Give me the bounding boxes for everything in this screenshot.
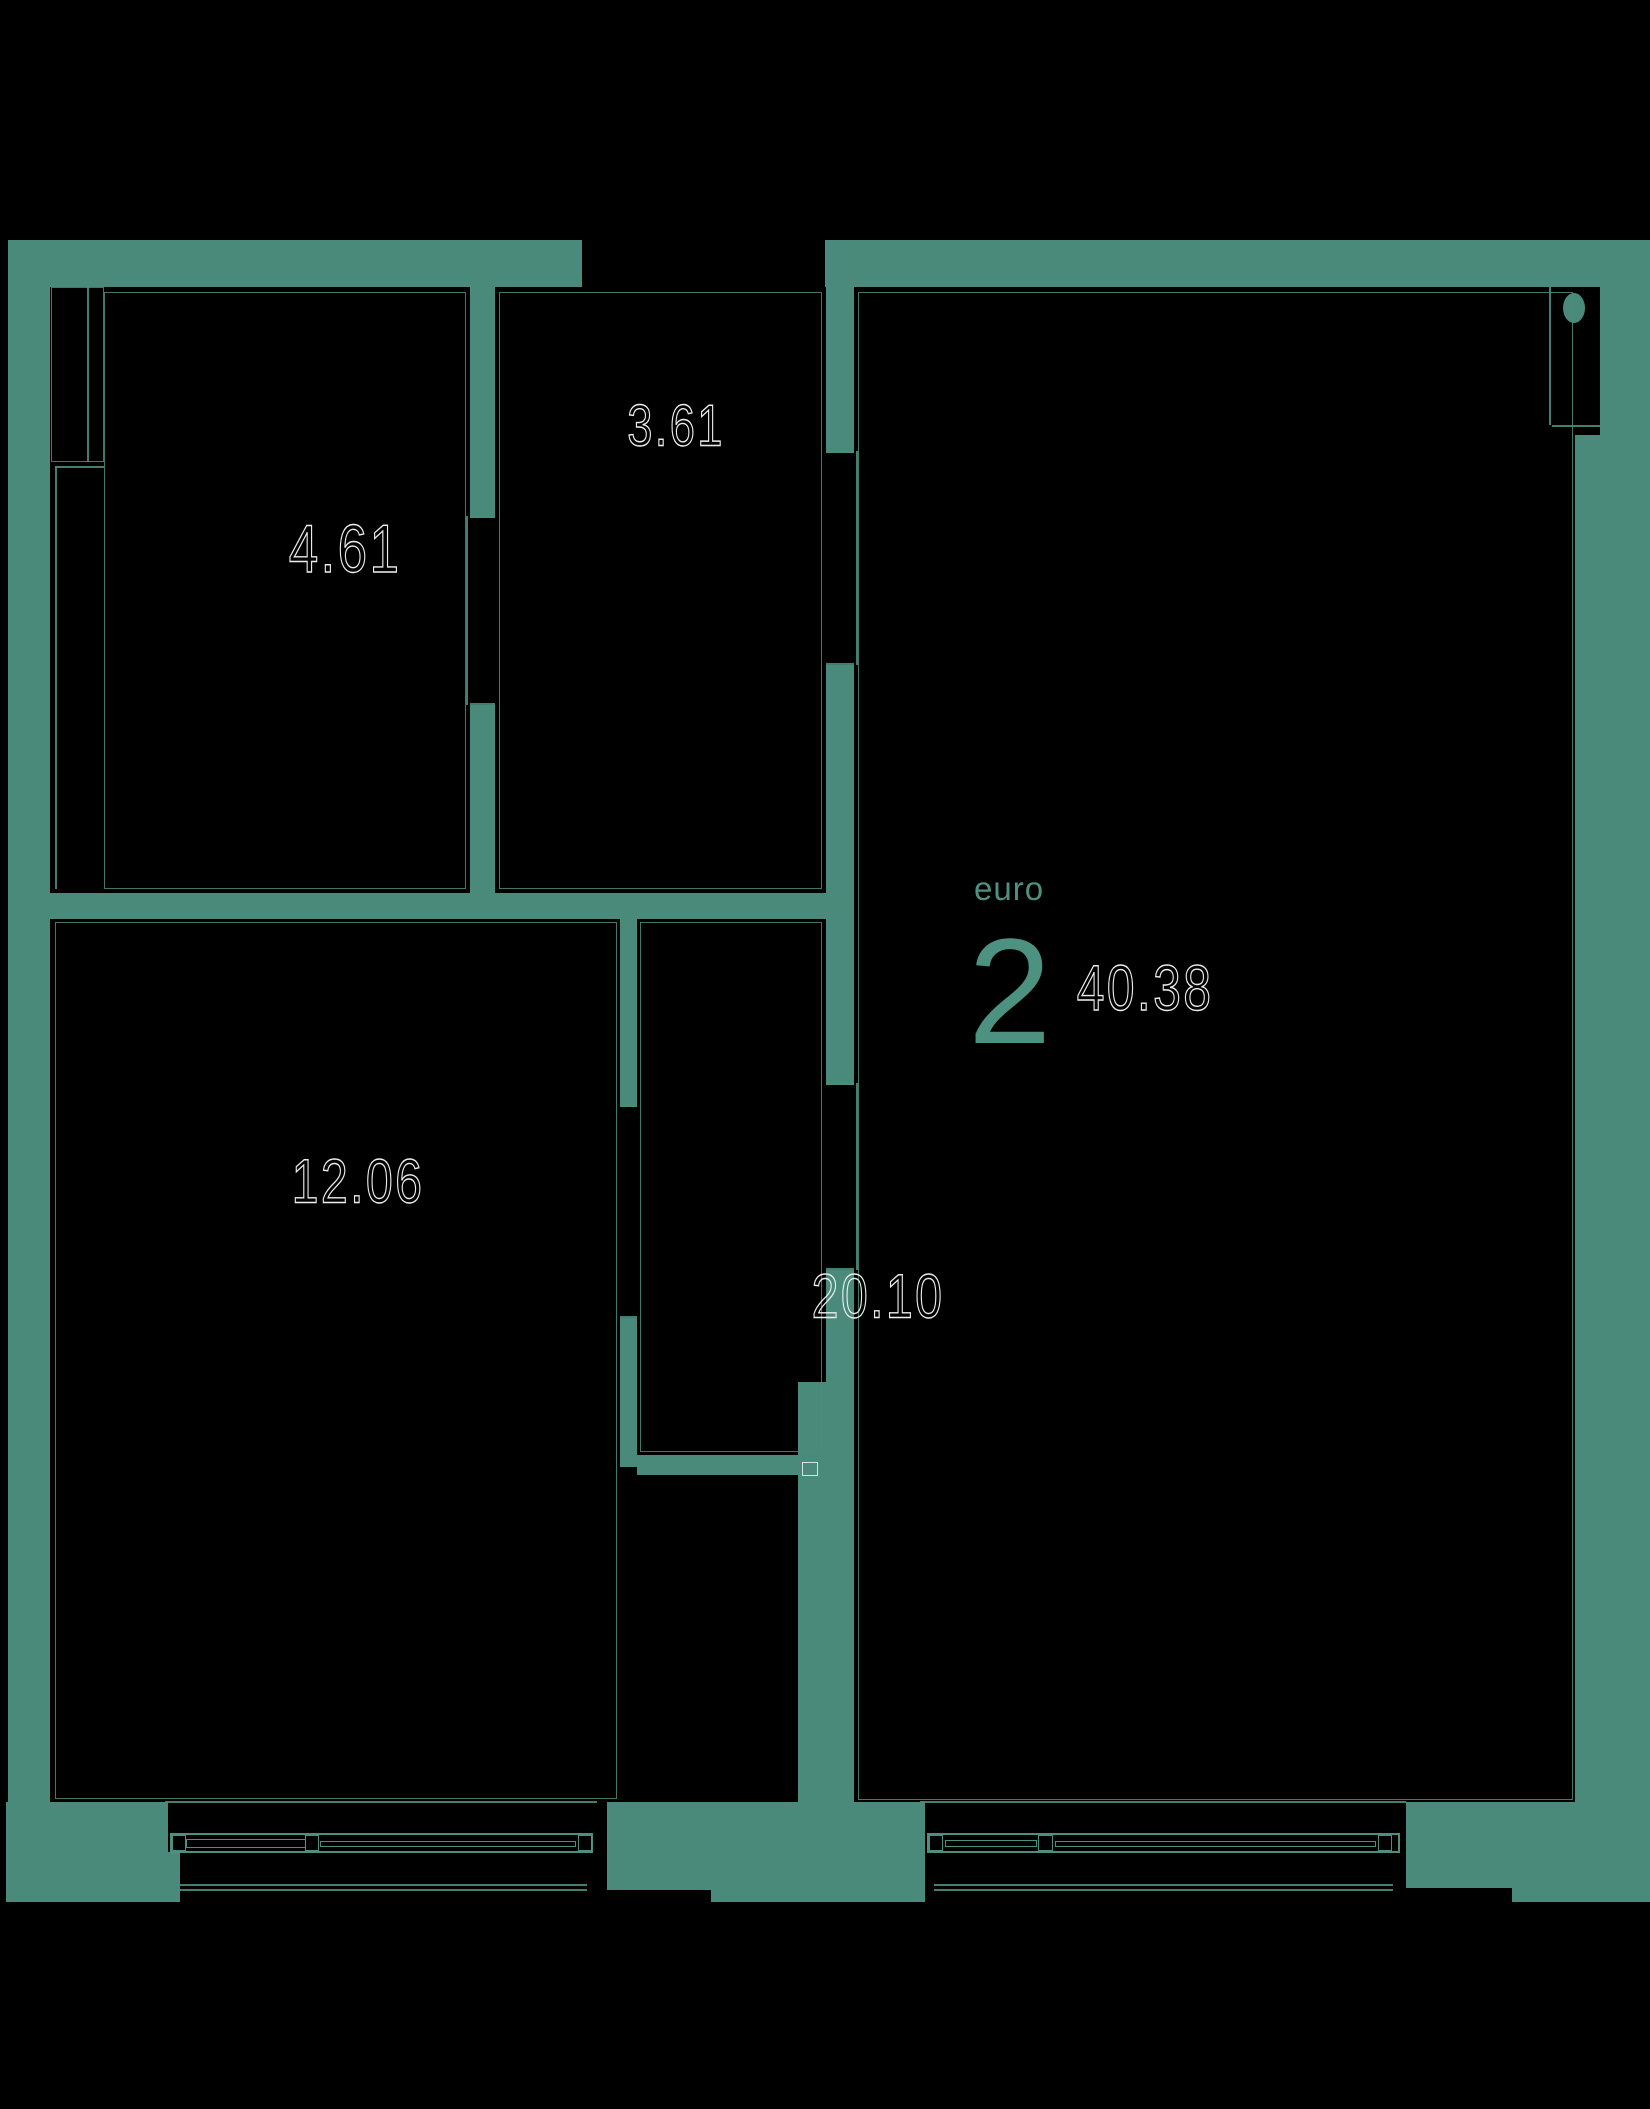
hallway-inner-outline (499, 292, 822, 889)
room461-left-face-step (55, 466, 104, 468)
wall-room461-right-lower (470, 705, 495, 893)
area-label-hallway: 3.61 (627, 393, 724, 460)
window-left-bracket-3 (578, 1835, 592, 1851)
window-right-glazing (1055, 1841, 1376, 1847)
window-right-bracket-1 (929, 1835, 943, 1851)
wardrobe-outline (51, 287, 104, 462)
window-left-sill-line-b (177, 1889, 587, 1891)
wall-top-left (8, 240, 582, 287)
window-right-sill-line-b (934, 1889, 1393, 1891)
room1206-inner-outline (55, 922, 617, 1799)
area-label-living-kitchen: 20.10 (812, 1262, 945, 1333)
door-living-jamb-a (826, 1083, 854, 1085)
corridor-inner-outline (640, 922, 822, 1452)
room461-inner-outline (104, 292, 466, 889)
window-left-glazing (320, 1841, 576, 1847)
wall-horizontal-middle (50, 893, 826, 919)
window-right-bracket-2 (1038, 1835, 1053, 1851)
door-corridor-jamb-b (620, 1316, 637, 1318)
opening-mid-top-side (856, 451, 858, 665)
area-label-room-top-left: 4.61 (289, 510, 402, 588)
wall-room461-right-upper (470, 287, 495, 518)
floor-plan: 4.61 3.61 12.06 20.10 euro 2 40.38 (0, 0, 1650, 2109)
area-label-room-bottom-left: 12.06 (292, 1147, 425, 1218)
window-right-top-face-line (920, 1801, 1406, 1803)
wardrobe-door-line (87, 287, 89, 462)
window-right-sash (945, 1840, 1037, 1847)
room461-left-face-line (55, 466, 57, 889)
wall-top-right (825, 240, 1650, 287)
wall-left (8, 287, 50, 1802)
window-left-sash (186, 1839, 306, 1848)
wall-left-foot-upper (6, 1802, 168, 1852)
window-left-bracket-2 (305, 1835, 319, 1851)
wall-left-foot-lower (6, 1852, 180, 1902)
door461-jamb-bottom (470, 703, 495, 705)
door-corridor-jamb-a (620, 1105, 637, 1107)
wall-middle-seg-top (826, 287, 854, 453)
corridor-end-tick (802, 1462, 818, 1476)
window-left-top-face-line (165, 1801, 597, 1803)
pier-bottom-center (607, 1802, 925, 1890)
door461-jamb-side (466, 516, 468, 705)
window-right-bracket-3 (1378, 1835, 1392, 1851)
unit-type-label: euro (974, 870, 1044, 908)
wall-right-foot-lower (1512, 1888, 1650, 1902)
wall-right-top-strip (1600, 287, 1650, 435)
wall-corridor-lower (620, 1318, 637, 1467)
wall-corridor-upper (620, 919, 637, 1107)
living-inner-outline (858, 292, 1573, 1800)
unit-rooms-number: 2 (968, 916, 1051, 1066)
wall-middle-seg-mid (826, 665, 854, 1085)
opening-mid-top-jamb-a (826, 451, 854, 453)
unit-total-area: 40.38 (1077, 951, 1214, 1025)
wall-corridor-bottom (637, 1455, 798, 1475)
window-right-sill-line-a (934, 1884, 1393, 1886)
opening-mid-top-jamb-b (826, 663, 854, 665)
wall-right-foot-upper (1406, 1802, 1650, 1888)
window-left-bracket-1 (172, 1835, 186, 1851)
pier-bottom-center-foot (711, 1890, 925, 1902)
door461-jamb-top (470, 516, 495, 518)
door-living-side (856, 1083, 858, 1270)
window-left-sill-line-a (177, 1884, 587, 1886)
wall-right (1575, 435, 1650, 1802)
